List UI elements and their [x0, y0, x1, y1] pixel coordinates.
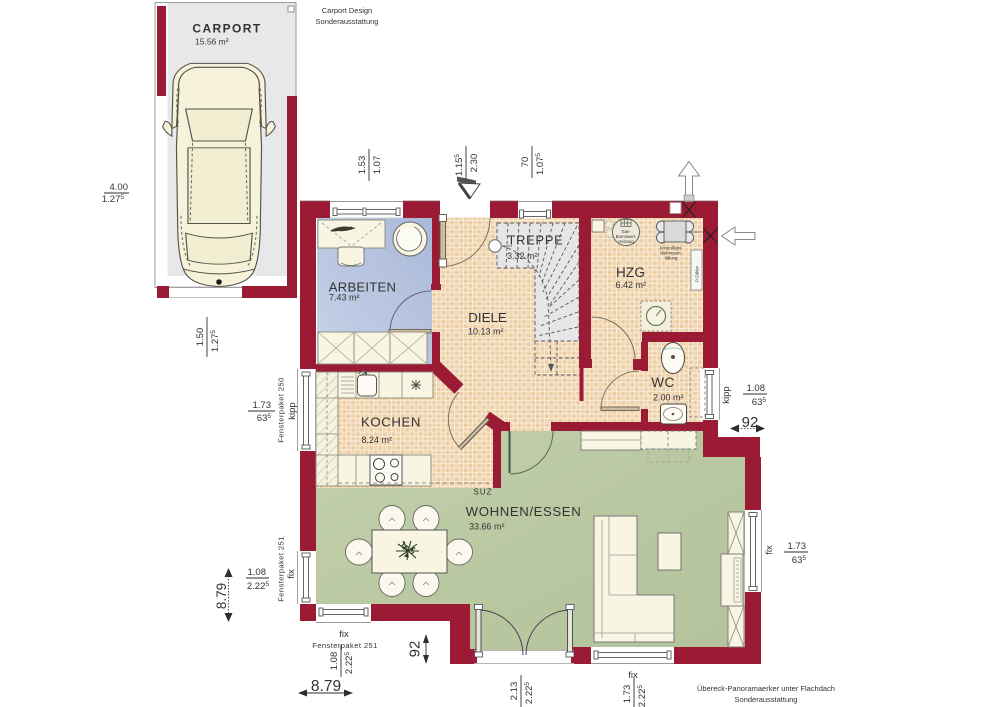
svg-text:Fensterpaket 251: Fensterpaket 251 [277, 536, 286, 602]
svg-text:1.08: 1.08 [747, 383, 766, 394]
svg-text:1.08: 1.08 [248, 567, 267, 578]
svg-text:SUZ: SUZ [474, 488, 493, 497]
svg-text:fix: fix [628, 670, 638, 681]
svg-text:fix: fix [339, 629, 349, 640]
svg-text:33.66 m²: 33.66 m² [469, 522, 505, 532]
svg-text:Carport Design: Carport Design [322, 6, 372, 15]
svg-text:1.08: 1.08 [329, 652, 340, 671]
svg-text:Fensterpaket 250: Fensterpaket 250 [277, 377, 286, 443]
svg-text:1.73: 1.73 [622, 685, 633, 704]
svg-text:DIELE: DIELE [468, 310, 507, 325]
svg-text:kipp: kipp [287, 402, 298, 419]
svg-text:HZG: HZG [616, 265, 645, 280]
svg-text:8.79: 8.79 [214, 583, 229, 609]
svg-text:7.43 m²: 7.43 m² [329, 293, 360, 303]
svg-text:fix: fix [764, 545, 775, 555]
svg-text:2.30: 2.30 [469, 154, 480, 173]
svg-text:CARPORT: CARPORT [192, 22, 261, 36]
svg-text:8.24 m²: 8.24 m² [362, 435, 393, 445]
svg-text:WOHNEN/ESSEN: WOHNEN/ESSEN [466, 504, 582, 519]
svg-text:8.79: 8.79 [311, 678, 341, 695]
svg-text:Sonderausstattung: Sonderausstattung [316, 17, 379, 26]
svg-text:1.53: 1.53 [357, 156, 368, 175]
svg-text:6.42 m²: 6.42 m² [616, 280, 647, 290]
svg-text:2.13: 2.13 [509, 682, 520, 701]
svg-text:TREPPE: TREPPE [508, 233, 564, 248]
svg-text:Sonderausstattung: Sonderausstattung [735, 695, 798, 704]
svg-text:fix: fix [286, 569, 297, 579]
svg-text:KOCHEN: KOCHEN [361, 415, 421, 430]
svg-text:1.50: 1.50 [195, 328, 206, 347]
svg-text:WC: WC [651, 375, 675, 390]
svg-text:Übereck-Panoramaerker unter Fl: Übereck-Panoramaerker unter Flachdach [697, 684, 835, 693]
svg-text:1.73: 1.73 [788, 541, 807, 552]
svg-text:2.00 m²: 2.00 m² [653, 393, 684, 403]
svg-text:Fensterpaket 251: Fensterpaket 251 [312, 641, 378, 650]
svg-text:P-Zähler: P-Zähler [695, 265, 700, 282]
svg-text:3.32 m²: 3.32 m² [507, 251, 538, 261]
svg-text:15.56 m²: 15.56 m² [195, 37, 229, 47]
svg-text:92: 92 [407, 641, 424, 658]
svg-text:kipp: kipp [721, 386, 732, 403]
svg-text:70: 70 [520, 157, 531, 168]
svg-text:Heizung: Heizung [618, 239, 634, 244]
svg-text:4.00: 4.00 [110, 182, 129, 193]
svg-text:10.13 m²: 10.13 m² [468, 327, 504, 337]
svg-text:lüftung: lüftung [665, 256, 678, 261]
svg-text:1.73: 1.73 [253, 400, 272, 411]
svg-text:1.07: 1.07 [372, 156, 383, 175]
